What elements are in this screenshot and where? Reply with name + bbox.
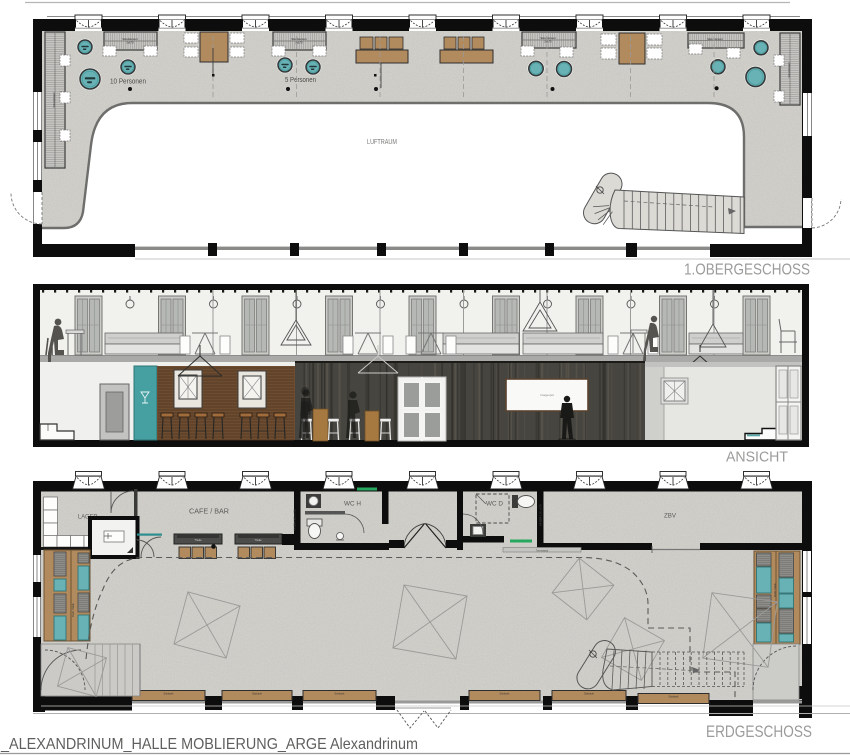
svg-text:1.OBERGESCHOSS: 1.OBERGESCHOSS: [684, 262, 810, 279]
svg-text:_ALEXANDRINUM_HALLE MOBLIERUN: _ALEXANDRINUM_HALLE MOBLIERUNG_ARGE Alex…: [0, 736, 418, 753]
svg-text:ERDGESCHOSS: ERDGESCHOSS: [706, 722, 812, 741]
svg-text:Sitzbank: Sitzbank: [669, 695, 680, 699]
svg-text:2x0,70: 2x0,70: [126, 42, 134, 45]
svg-text:Sofa Element: Sofa Element: [540, 36, 556, 40]
svg-text:Sitzbank: Sitzbank: [584, 692, 595, 696]
svg-text:WC D: WC D: [486, 501, 503, 508]
svg-text:ZBV: ZBV: [664, 513, 677, 520]
svg-text:Sofa Element: Sofa Element: [122, 37, 138, 41]
svg-text:Tisch / Bank: Tisch / Bank: [72, 602, 75, 616]
svg-text:LUFTRAUM: LUFTRAUM: [367, 137, 397, 146]
svg-text:04 0894 1.00 x 078: 04 0894 1.00 x 078: [540, 504, 543, 526]
svg-text:2x0,70: 2x0,70: [544, 41, 552, 44]
svg-text:5 Personen: 5 Personen: [285, 75, 316, 84]
svg-text:10 Personen: 10 Personen: [110, 77, 146, 86]
svg-text:Theke: Theke: [194, 538, 202, 542]
svg-text:Sofa Element: Sofa Element: [52, 92, 56, 108]
svg-text:WC H: WC H: [344, 501, 361, 508]
svg-text:Tisch / Bank: Tisch / Bank: [774, 582, 777, 596]
svg-text:Sitzbank: Sitzbank: [164, 692, 175, 696]
svg-text:Imagespot: Imagespot: [540, 393, 554, 397]
svg-text:Theke: Theke: [254, 538, 262, 542]
svg-text:Sofa Element: Sofa Element: [707, 37, 723, 41]
svg-text:Trennwand: Trennwand: [536, 549, 549, 552]
svg-text:Sitzbank: Sitzbank: [335, 692, 346, 696]
svg-text:04 0894 100 x 078: 04 0894 100 x 078: [294, 509, 297, 530]
svg-text:Sitzbank: Sitzbank: [252, 692, 263, 696]
svg-text:Sofa Element: Sofa Element: [787, 62, 791, 78]
svg-text:ANSICHT: ANSICHT: [726, 449, 788, 466]
svg-text:Sofa Element: Sofa Element: [291, 37, 307, 41]
svg-text:Sitzbank: Sitzbank: [500, 692, 511, 696]
svg-text:CAFE / BAR: CAFE / BAR: [189, 507, 230, 516]
